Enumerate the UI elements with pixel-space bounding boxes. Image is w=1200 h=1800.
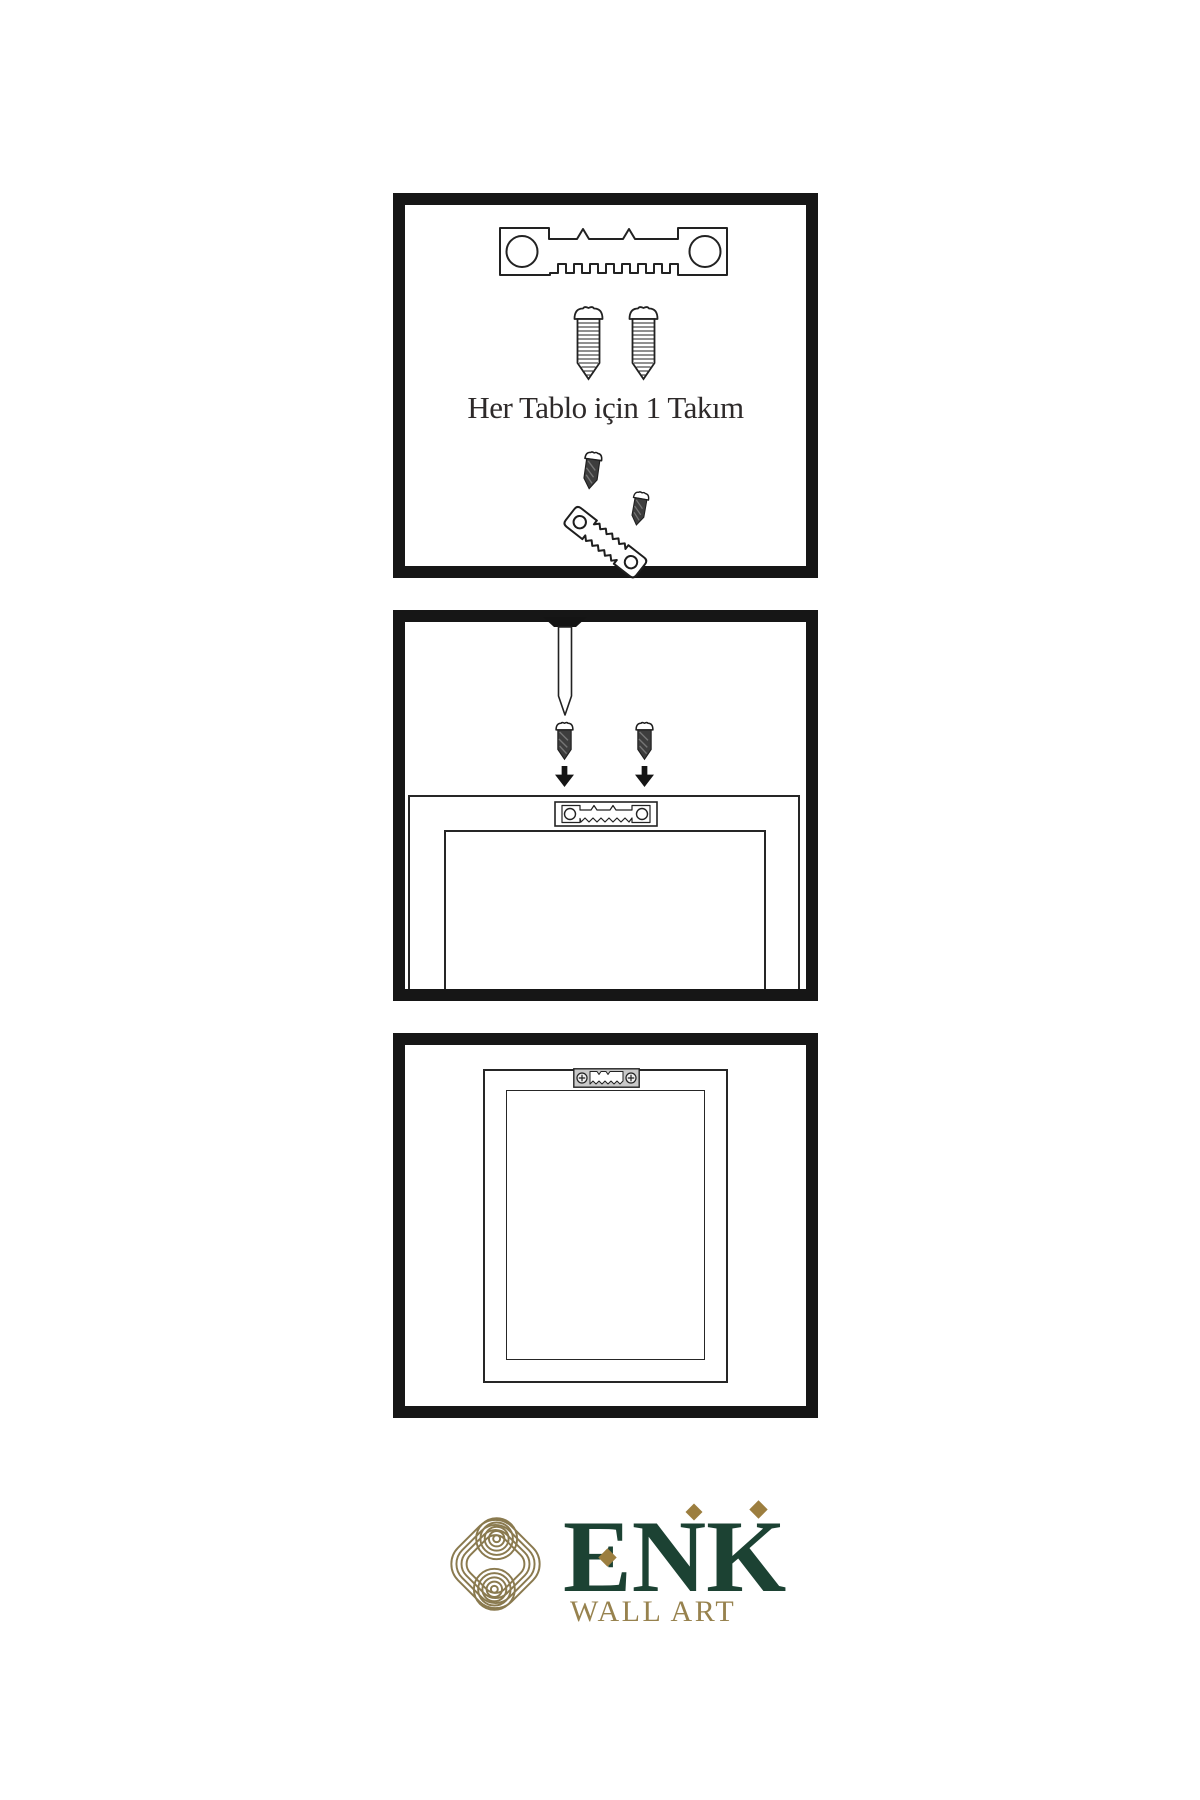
sawtooth-hanger-icon: [497, 225, 730, 278]
set-caption: Her Tablo için 1 Takım: [405, 391, 806, 425]
nail-icon: [542, 617, 588, 718]
screw-icon: [571, 305, 606, 383]
arrow-down-icon: [555, 766, 574, 787]
step-panel-wall-installation: [393, 610, 818, 1001]
dark-screw-icon: [578, 450, 605, 495]
sawtooth-hanger-mounted-icon: [573, 1068, 640, 1088]
screw-icon: [626, 305, 661, 383]
logo-subtitle: WALL ART: [570, 1597, 736, 1627]
step-panel-hardware-set: Her Tablo için 1 Takım: [393, 193, 818, 578]
page: { "caption": { "text": "Her Tablo için 1…: [0, 0, 1200, 1800]
step-panel-hung-frame: [393, 1033, 818, 1418]
logo-wordmark: ENK: [563, 1506, 786, 1609]
arrow-down-icon: [635, 766, 654, 787]
hung-frame-inner: [506, 1090, 705, 1360]
knot-logo-icon: [438, 1505, 553, 1623]
sawtooth-hanger-plate-icon: [554, 801, 658, 827]
dark-screw-icon: [626, 490, 652, 531]
dark-screw-icon: [554, 721, 575, 764]
dark-screw-icon: [634, 721, 655, 764]
frame-back-inner: [444, 830, 766, 989]
